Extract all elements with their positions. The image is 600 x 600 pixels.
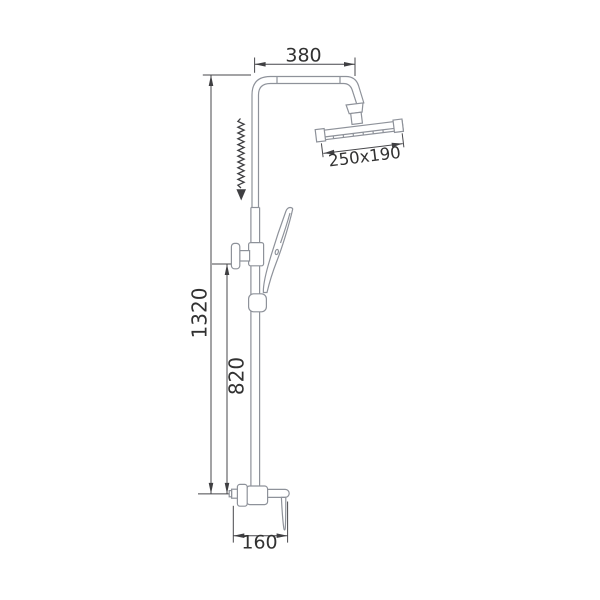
drawing-canvas: 380 1320 820 160 bbox=[0, 0, 600, 600]
rain-head-arm bbox=[340, 77, 364, 105]
shower-set-technical-drawing: 380 1320 820 160 bbox=[0, 0, 600, 600]
dimension-label-250x190: 250x190 bbox=[327, 143, 402, 171]
mixer-lever bbox=[281, 497, 285, 530]
dimension-label-380: 380 bbox=[285, 45, 321, 67]
mixer-spout bbox=[267, 489, 289, 497]
bracket-stem bbox=[240, 251, 250, 261]
dimension-base-depth: 160 bbox=[233, 502, 287, 554]
bracket-wall-knob bbox=[231, 243, 239, 268]
mixer-valve bbox=[229, 484, 289, 530]
hand-shower bbox=[263, 207, 292, 292]
dimension-label-160: 160 bbox=[241, 532, 277, 554]
dimension-bar-height: 820 bbox=[212, 264, 249, 494]
bracket-pipe-clamp bbox=[249, 243, 264, 266]
dimension-label-820: 820 bbox=[225, 357, 249, 395]
dimension-label-1320: 1320 bbox=[188, 288, 212, 339]
mixer-inlet-stem bbox=[232, 489, 238, 498]
mixer-body bbox=[247, 486, 268, 505]
mixer-inlet-nut bbox=[229, 491, 231, 497]
slider-block bbox=[249, 294, 267, 312]
dimension-top-width: 380 bbox=[255, 45, 355, 77]
rain-shower-head bbox=[313, 98, 404, 142]
mixer-wall-flange bbox=[237, 484, 247, 506]
wall-bracket bbox=[231, 243, 263, 269]
height-adjust-arrow-icon bbox=[236, 119, 246, 201]
